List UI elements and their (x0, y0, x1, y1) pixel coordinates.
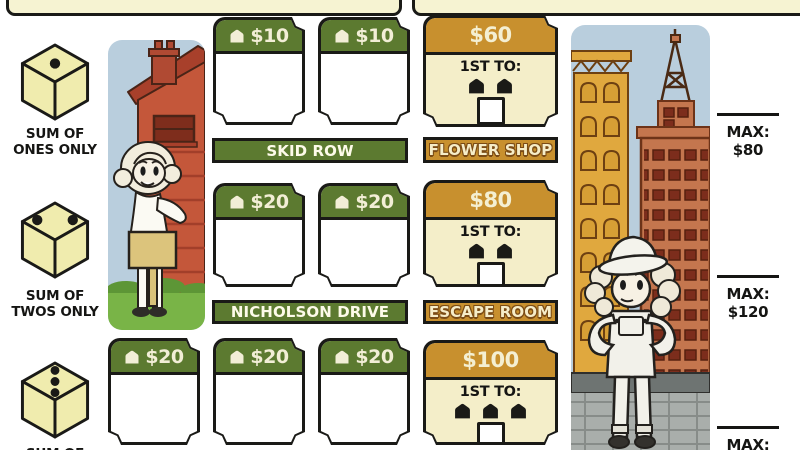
house-icon (467, 78, 486, 94)
property-price: $20 (250, 191, 288, 213)
bonus-price: $100 (462, 348, 518, 372)
die-twos-label-line2: TWOS ONLY (0, 304, 110, 320)
bonus-card-flower-shop: $60 1ST TO: (423, 15, 558, 127)
first-to-label: 1ST TO: (460, 384, 521, 400)
house-icon (509, 403, 528, 419)
house-icon (481, 403, 500, 419)
street-name: SKID ROW (266, 142, 353, 160)
illustration-realtor-house (108, 40, 205, 330)
edge-die-pips-sliver (795, 347, 800, 389)
bonus-checkbox[interactable] (477, 97, 505, 125)
die-threes-label: SUM OF (0, 446, 110, 450)
house-icon (124, 350, 140, 364)
street-banner-skid-row: SKID ROW (212, 138, 408, 163)
house-icon (453, 403, 472, 419)
bonus-card-header: $100 (426, 343, 555, 380)
property-card: $10 (213, 17, 305, 125)
bonus-checkbox[interactable] (477, 422, 505, 450)
bonus-card-body: 1ST TO: (426, 55, 555, 125)
property-card-header: $10 (216, 20, 302, 54)
limit-row-3: MAX: (706, 426, 790, 450)
house-icon (334, 29, 350, 43)
bonus-name: FLOWER SHOP (429, 141, 553, 159)
die-threes-label-line1: SUM OF (0, 446, 110, 450)
property-write-area[interactable] (321, 220, 407, 284)
house-icon (229, 350, 245, 364)
property-card-header: $20 (216, 341, 302, 375)
property-card: $10 (318, 17, 410, 125)
limit-divider (717, 275, 779, 278)
die-threes-icon (18, 360, 92, 444)
street-name: NICHOLSON DRIVE (231, 303, 389, 321)
bonus-price: $80 (469, 188, 511, 212)
property-price: $20 (250, 346, 288, 368)
top-tab-right (412, 0, 800, 16)
property-write-area[interactable] (216, 375, 302, 442)
property-price: $10 (355, 25, 393, 47)
die-twos-icon (18, 200, 92, 284)
die-ones-label: SUM OF ONES ONLY (0, 126, 110, 159)
limit-divider (717, 426, 779, 429)
property-write-area[interactable] (216, 220, 302, 284)
house-icon (334, 195, 350, 209)
bonus-card-header: $60 (426, 18, 555, 55)
property-card-header: $20 (216, 186, 302, 220)
property-card: $20 (108, 338, 200, 445)
property-write-area[interactable] (111, 375, 197, 442)
property-card: $20 (213, 338, 305, 445)
die-twos-label-line1: SUM OF (0, 288, 110, 304)
illustration-builder-city (571, 25, 710, 450)
first-to-label: 1ST TO: (460, 224, 521, 240)
house-icon (495, 78, 514, 94)
house-icon (334, 350, 350, 364)
property-price: $10 (250, 25, 288, 47)
die-ones-label-line1: SUM OF (0, 126, 110, 142)
bonus-card-body: 1ST TO: (426, 380, 555, 450)
property-price: $20 (145, 346, 183, 368)
limit-row-2: MAX: $120 (706, 275, 790, 321)
limit-divider (717, 113, 779, 116)
property-write-area[interactable] (216, 54, 302, 122)
property-card: $20 (318, 338, 410, 445)
houses-required (453, 403, 528, 419)
bonus-card-100: $100 1ST TO: (423, 340, 558, 445)
bonus-card-header: $80 (426, 183, 555, 220)
house-icon (495, 243, 514, 259)
property-card-header: $20 (321, 341, 407, 375)
limit-label: MAX: (706, 285, 790, 303)
bonus-card-escape-room: $80 1ST TO: (423, 180, 558, 287)
top-tab-left (6, 0, 402, 16)
bonus-card-body: 1ST TO: (426, 220, 555, 290)
limit-row-1: MAX: $80 (706, 113, 790, 159)
score-sheet: SUM OF ONES ONLY SUM OF TWOS ONLY SUM OF (0, 0, 800, 450)
houses-required (467, 78, 514, 94)
property-card-header: $10 (321, 20, 407, 54)
limit-value: $80 (706, 141, 790, 159)
die-ones-icon (18, 42, 92, 126)
limit-label: MAX: (706, 436, 790, 450)
bonus-checkbox[interactable] (477, 262, 505, 290)
houses-required (467, 243, 514, 259)
limit-value: $120 (706, 303, 790, 321)
property-card: $20 (318, 183, 410, 287)
bonus-name: ESCAPE ROOM (429, 303, 552, 321)
property-card-header: $20 (321, 186, 407, 220)
limit-label: MAX: (706, 123, 790, 141)
property-card: $20 (213, 183, 305, 287)
first-to-label: 1ST TO: (460, 59, 521, 75)
bonus-price: $60 (469, 23, 511, 47)
property-price: $20 (355, 346, 393, 368)
die-ones-label-line2: ONES ONLY (0, 142, 110, 158)
bonus-banner-flower-shop: FLOWER SHOP (423, 137, 558, 163)
street-banner-nicholson-drive: NICHOLSON DRIVE (212, 300, 408, 324)
house-icon (229, 29, 245, 43)
die-twos-label: SUM OF TWOS ONLY (0, 288, 110, 321)
property-card-header: $20 (111, 341, 197, 375)
property-write-area[interactable] (321, 54, 407, 122)
property-write-area[interactable] (321, 375, 407, 442)
bonus-banner-escape-room: ESCAPE ROOM (423, 300, 558, 324)
property-price: $20 (355, 191, 393, 213)
house-icon (467, 243, 486, 259)
house-icon (229, 195, 245, 209)
